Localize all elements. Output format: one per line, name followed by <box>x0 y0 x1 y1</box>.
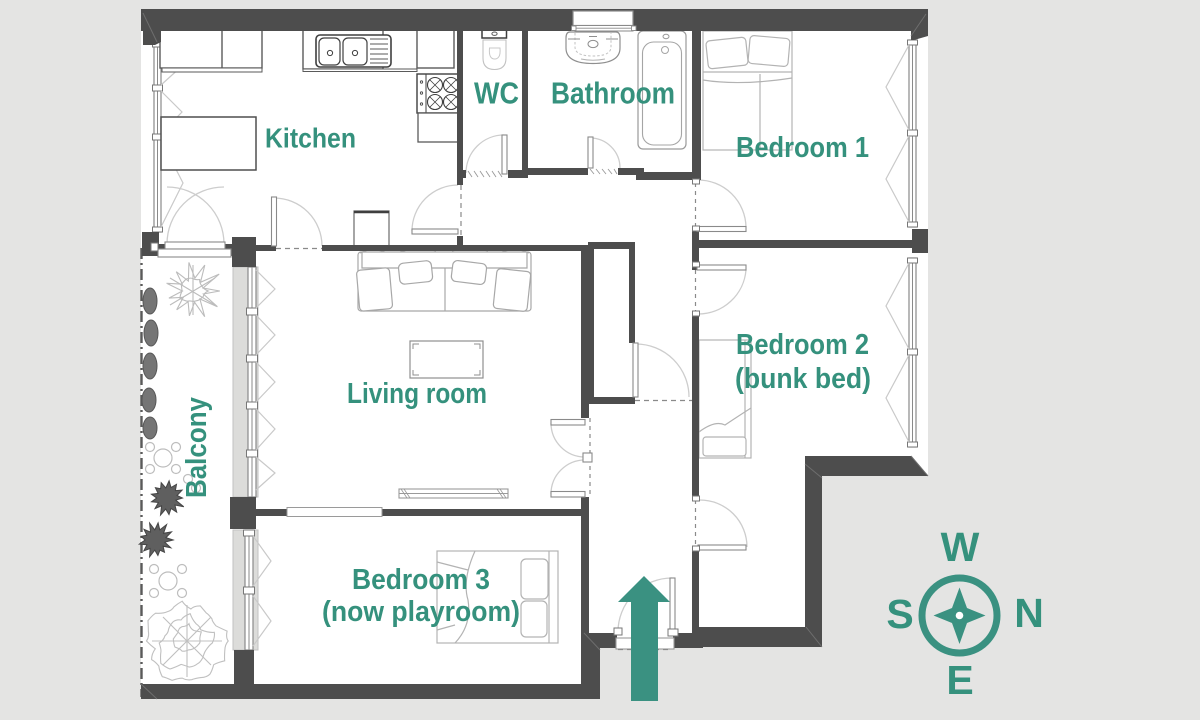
svg-text:Bathroom: Bathroom <box>551 76 675 111</box>
svg-text:Kitchen: Kitchen <box>265 123 356 154</box>
svg-text:Bedroom 3: Bedroom 3 <box>352 564 490 596</box>
svg-text:Bedroom 1: Bedroom 1 <box>736 132 869 164</box>
svg-text:WC: WC <box>474 76 519 111</box>
svg-text:(bunk bed): (bunk bed) <box>735 363 871 395</box>
svg-text:Balcony: Balcony <box>181 397 213 498</box>
svg-text:Bedroom 2: Bedroom 2 <box>736 329 869 361</box>
svg-text:N: N <box>1014 590 1044 636</box>
svg-text:Living room: Living room <box>347 378 487 410</box>
svg-text:E: E <box>946 657 973 703</box>
svg-text:W: W <box>941 524 980 570</box>
svg-text:S: S <box>886 591 913 637</box>
svg-text:(now playroom): (now playroom) <box>322 596 520 628</box>
